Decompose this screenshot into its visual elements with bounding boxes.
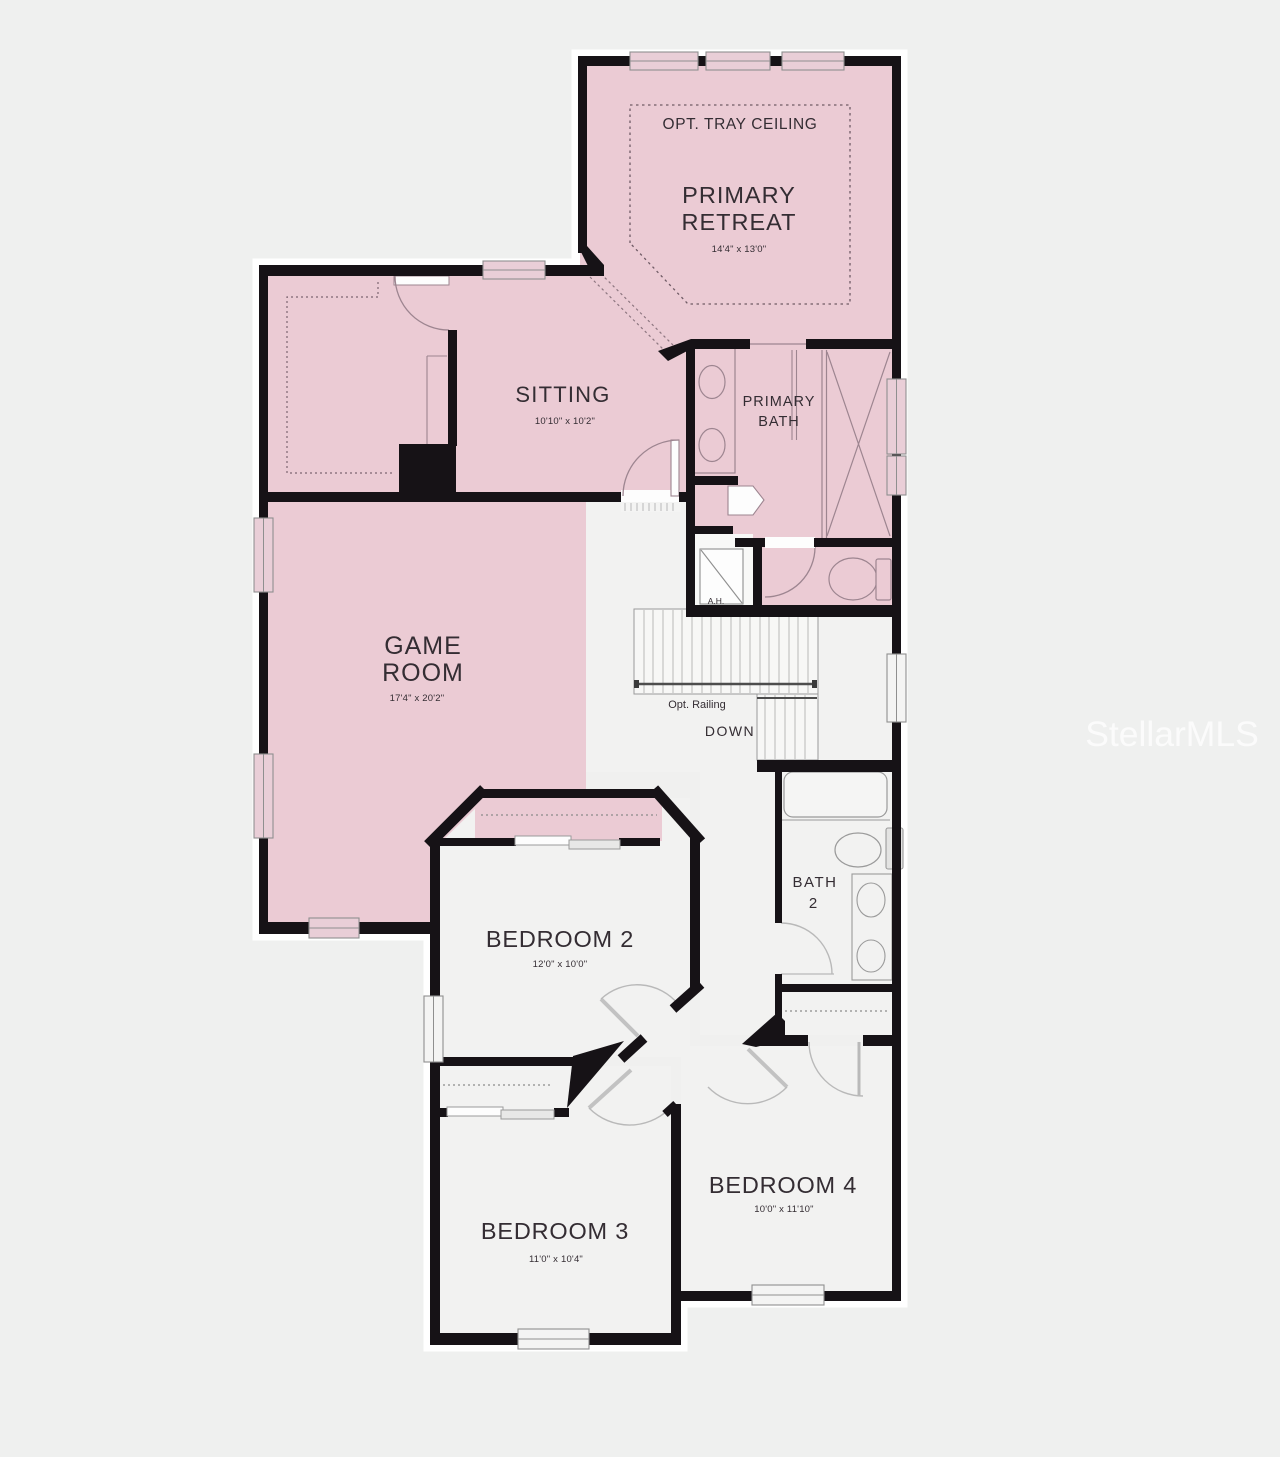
svg-text:BEDROOM 4: BEDROOM 4 [709,1172,857,1198]
svg-text:2: 2 [809,895,817,912]
svg-text:12'0" x 10'0": 12'0" x 10'0" [533,959,588,970]
svg-text:SITTING: SITTING [515,382,610,407]
svg-text:BATH: BATH [758,414,800,430]
svg-text:StellarMLS: StellarMLS [1085,714,1259,754]
svg-text:14'4" x 13'0": 14'4" x 13'0" [712,244,767,255]
svg-text:BATH: BATH [793,874,838,891]
svg-text:PRIMARY: PRIMARY [743,394,816,410]
svg-text:ROOM: ROOM [382,659,464,687]
svg-text:OPT. TRAY CEILING: OPT. TRAY CEILING [663,116,818,133]
svg-text:10'0" x 11'10": 10'0" x 11'10" [754,1204,813,1215]
svg-text:11'0" x 10'4": 11'0" x 10'4" [529,1254,583,1265]
svg-text:PRIMARY: PRIMARY [682,182,796,208]
svg-text:A.H.: A.H. [708,596,725,606]
svg-text:10'10" x 10'2": 10'10" x 10'2" [535,416,595,427]
svg-text:GAME: GAME [384,632,462,660]
svg-text:Opt. Railing: Opt. Railing [668,699,725,711]
svg-text:BEDROOM 2: BEDROOM 2 [486,926,634,952]
svg-text:17'4" x 20'2": 17'4" x 20'2" [390,693,445,704]
svg-text:BEDROOM 3: BEDROOM 3 [481,1218,629,1244]
svg-text:RETREAT: RETREAT [682,209,797,235]
svg-text:DOWN: DOWN [705,723,755,739]
